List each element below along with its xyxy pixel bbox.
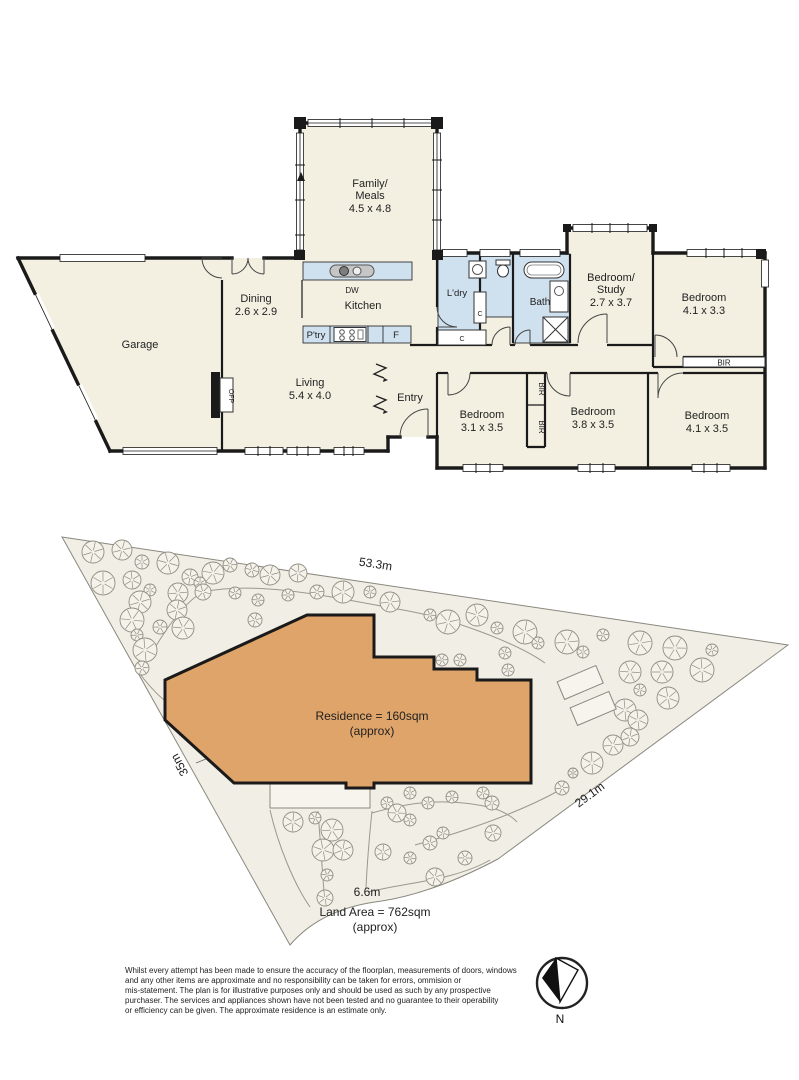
site-plan: Residence = 160sqm (approx) Land Area = … xyxy=(0,530,799,970)
tree xyxy=(436,610,460,634)
tree xyxy=(333,840,353,860)
room-label-bed-top: Bedroom xyxy=(682,292,727,304)
tree xyxy=(555,630,579,654)
tree xyxy=(651,661,673,683)
tree xyxy=(657,687,679,709)
tree xyxy=(454,654,466,666)
tree xyxy=(532,637,544,649)
residence-label-line2: (approx) xyxy=(350,724,395,738)
tree xyxy=(597,629,609,641)
tree xyxy=(289,564,307,582)
tree xyxy=(172,617,194,639)
tree xyxy=(485,796,499,810)
tree xyxy=(282,589,294,601)
tree xyxy=(491,622,503,634)
label-pantry: P'try xyxy=(307,330,326,341)
tree xyxy=(82,541,104,563)
room-label-garage: Garage xyxy=(122,339,159,351)
tree xyxy=(133,638,157,662)
land-area-label-line1: Land Area = 762sqm xyxy=(319,905,430,919)
tree xyxy=(436,654,448,666)
room-label-family-line2: Meals xyxy=(355,190,385,202)
tree xyxy=(422,797,434,809)
tree xyxy=(634,684,646,696)
tree xyxy=(477,787,489,799)
tree xyxy=(153,620,167,634)
room-label-bed-top-dims: 4.1 x 3.3 xyxy=(683,305,725,317)
tree xyxy=(135,661,149,675)
disclaimer-line: or efficiency can be given. The approxim… xyxy=(125,1006,517,1016)
tree xyxy=(404,852,416,864)
tree xyxy=(437,827,449,839)
tree xyxy=(112,540,132,560)
toilet-icon xyxy=(496,260,510,277)
room-label-kitchen: Kitchen xyxy=(345,300,382,312)
floor-plan: Family/ Meals 4.5 x 4.8 Dining 2.6 x 2.9… xyxy=(0,0,799,530)
room-label-family-dims: 4.5 x 4.8 xyxy=(349,203,391,215)
cupboard-box-1 xyxy=(474,292,486,323)
tree xyxy=(426,868,444,886)
disclaimer-line: Whilst every attempt has been made to en… xyxy=(125,966,517,976)
land-area-label-line2: (approx) xyxy=(353,920,398,934)
tree xyxy=(706,644,718,656)
tree xyxy=(568,768,578,778)
tree xyxy=(458,851,472,865)
compass-needle-light xyxy=(556,958,578,1002)
tree xyxy=(229,587,241,599)
tree xyxy=(424,609,436,621)
disclaimer-line: purchaser. The services and appliances s… xyxy=(125,996,517,1006)
tree xyxy=(621,728,639,746)
tree xyxy=(317,890,333,906)
tree xyxy=(502,664,514,676)
tree xyxy=(91,571,115,595)
room-label-laundry: L'dry xyxy=(447,288,468,299)
tree xyxy=(283,812,303,832)
tree xyxy=(663,636,687,660)
label-ofp: OFP xyxy=(227,389,234,404)
tree xyxy=(555,781,569,795)
room-label-study-line2: Study xyxy=(597,284,626,296)
vanity-basin-icon xyxy=(550,281,568,312)
label-bir-top: BIR xyxy=(717,359,731,368)
tree xyxy=(309,812,321,824)
disclaimer: Whilst every attempt has been made to en… xyxy=(125,966,517,1016)
tree xyxy=(375,844,391,860)
room-label-study-dims: 2.7 x 3.7 xyxy=(590,297,632,309)
label-dw: DW xyxy=(345,286,359,295)
tree xyxy=(619,661,641,683)
tree xyxy=(364,586,376,598)
tree xyxy=(577,646,589,658)
tree xyxy=(628,710,648,730)
tree xyxy=(603,735,623,755)
tree xyxy=(123,571,141,589)
room-label-bath: Bath xyxy=(530,297,551,308)
label-bir-mid1: BIR xyxy=(537,382,546,396)
tree xyxy=(499,647,511,659)
room-label-bed1-dims: 3.1 x 3.5 xyxy=(461,422,503,434)
tree xyxy=(223,558,237,572)
room-label-bed3: Bedroom xyxy=(685,410,730,422)
dishwasher-icon xyxy=(330,265,374,277)
room-label-bed3-dims: 4.1 x 3.5 xyxy=(686,423,728,435)
room-label-bed1: Bedroom xyxy=(460,409,505,421)
tree xyxy=(312,839,334,861)
room-label-family-line1: Family/ xyxy=(352,178,388,190)
label-cupboard1: C xyxy=(477,311,482,318)
dim-top: 53.3m xyxy=(358,555,393,574)
tree xyxy=(135,555,149,569)
tree xyxy=(466,604,488,626)
tree xyxy=(404,814,416,826)
residence-label-line1: Residence = 160sqm xyxy=(315,709,428,723)
bathtub-icon xyxy=(524,262,564,278)
stove-icon xyxy=(334,328,366,342)
tree xyxy=(321,819,343,841)
laundry-trough-icon xyxy=(469,261,486,278)
tree xyxy=(628,631,652,655)
room-label-study-line1: Bedroom/ xyxy=(587,272,636,284)
tree xyxy=(380,592,400,612)
tree xyxy=(310,585,324,599)
label-bir-mid2: BIR xyxy=(537,420,546,434)
label-cupboard2: C xyxy=(459,336,464,343)
tree xyxy=(581,752,603,774)
disclaimer-line: and any other items are approximate and … xyxy=(125,976,517,986)
tree xyxy=(248,613,262,627)
tree xyxy=(245,563,259,577)
room-label-entry: Entry xyxy=(397,392,423,404)
tree xyxy=(388,804,406,822)
room-label-living: Living xyxy=(296,377,325,389)
tree xyxy=(404,787,416,799)
tree xyxy=(195,584,211,600)
room-label-dining-dims: 2.6 x 2.9 xyxy=(235,306,277,318)
north-compass: N xyxy=(530,950,600,1030)
tree xyxy=(332,581,354,603)
compass-north-label: N xyxy=(556,1012,565,1026)
dim-bottom: 6.6m xyxy=(354,885,381,899)
tree xyxy=(120,608,144,632)
tree xyxy=(157,552,179,574)
room-label-bed2-dims: 3.8 x 3.5 xyxy=(572,419,614,431)
tree xyxy=(252,594,264,606)
shower-icon xyxy=(543,317,568,342)
tree xyxy=(321,869,333,881)
disclaimer-line: mis-statement. The plan is for illustrat… xyxy=(125,986,517,996)
tree xyxy=(485,825,501,841)
room-label-bed2: Bedroom xyxy=(571,406,616,418)
room-label-dining: Dining xyxy=(240,293,271,305)
floorplan-page: Family/ Meals 4.5 x 4.8 Dining 2.6 x 2.9… xyxy=(0,0,799,1080)
label-fridge: F xyxy=(393,330,399,341)
tree xyxy=(260,565,280,585)
tree xyxy=(446,791,458,803)
tree xyxy=(423,836,437,850)
room-label-living-dims: 5.4 x 4.0 xyxy=(289,390,331,402)
tree xyxy=(690,658,714,682)
